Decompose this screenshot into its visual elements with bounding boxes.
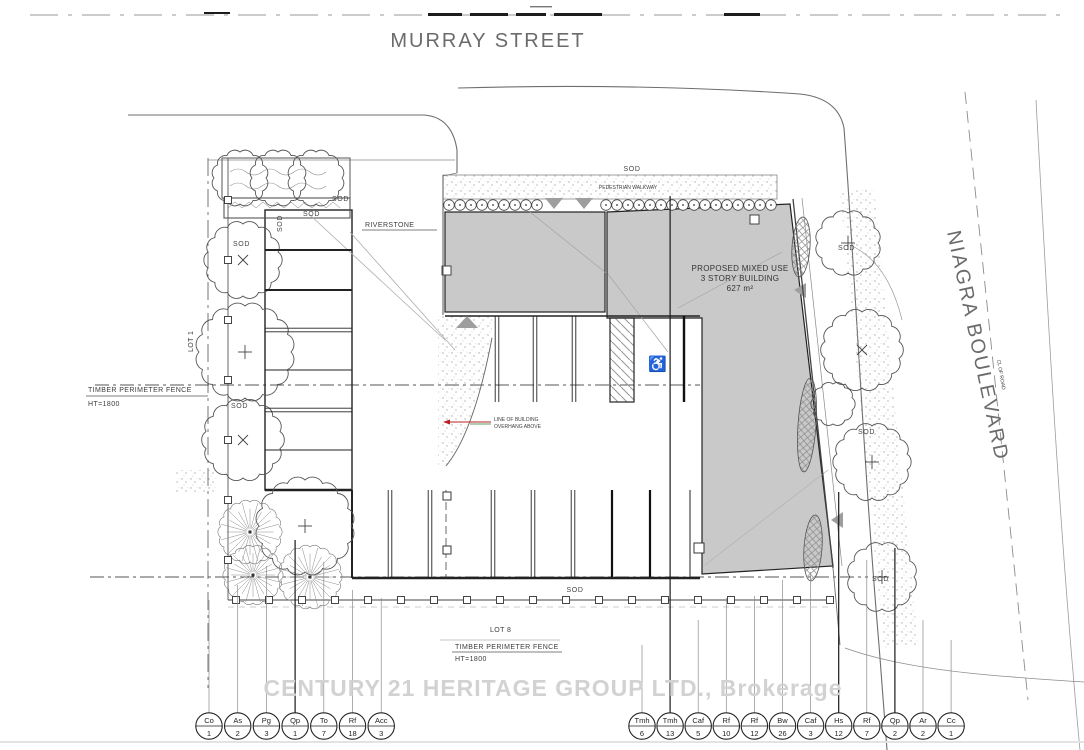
sod-label: SOD (233, 241, 250, 248)
conifer-spoke (313, 580, 332, 599)
plant-symbol-code: Acc (375, 716, 388, 725)
plant-symbol-count: 7 (322, 729, 326, 738)
plant-symbol-count: 1 (949, 729, 953, 738)
building-label-line2: 3 STORY BUILDING (701, 274, 780, 283)
plant-symbol-count: 13 (666, 729, 674, 738)
conifer-spoke (253, 511, 272, 530)
plant-symbol-code: Caf (692, 716, 705, 725)
plant-symbol-code: Qp (290, 716, 300, 725)
conifer-spoke (229, 511, 248, 530)
fence-post (629, 597, 636, 604)
plant-symbol-count: 5 (696, 729, 700, 738)
plant-symbol-code: Cc (947, 716, 956, 725)
overhang-note-line1: LINE OF BUILDING (494, 417, 539, 423)
fence-post (761, 597, 768, 604)
fence-label-left-line2: HT=1800 (88, 401, 120, 408)
plant-symbol-code: Rf (863, 716, 871, 725)
fence-label-left-line1: TIMBER PERIMETER FENCE (88, 387, 192, 394)
fence-post (332, 597, 339, 604)
wheelchair-icon: ♿ (648, 355, 667, 373)
plant-symbol-count: 7 (865, 729, 869, 738)
sod-label: SOD (838, 245, 855, 252)
fence-post (225, 317, 232, 324)
riverstone-leaders (310, 215, 455, 350)
plant-symbol-code: Co (204, 716, 214, 725)
sod-label: SOD (231, 403, 248, 410)
lot1-label: LOT 1 (188, 331, 195, 352)
plant-symbol-count: 2 (893, 729, 897, 738)
conifer-spoke (313, 556, 332, 575)
deciduous-tree (811, 383, 855, 426)
plant-symbol-code: Qp (890, 716, 900, 725)
plant-symbol-code: Rf (751, 716, 759, 725)
fence-post (794, 597, 801, 604)
plant-symbol-count: 2 (921, 729, 925, 738)
plant-symbol-code: Ar (919, 716, 927, 725)
murray-street-label: MURRAY STREET (390, 30, 585, 52)
plant-symbol-count: 3 (809, 729, 813, 738)
fence-post (225, 377, 232, 384)
building-label-line1: PROPOSED MIXED USE (692, 264, 789, 273)
brokerage-watermark: CENTURY 21 HERITAGE GROUP LTD., Brokerag… (263, 675, 842, 701)
fence-label-bottom-line1: TIMBER PERIMETER FENCE (455, 644, 559, 651)
conifer-spoke (289, 580, 308, 599)
sod-label: SOD (303, 211, 320, 218)
hedge-beds (222, 158, 350, 218)
fence-label-bottom-line2: HT=1800 (455, 656, 487, 663)
conifer-spoke (255, 555, 272, 572)
plant-symbol-code: To (320, 716, 328, 725)
plant-symbol-code: Rf (723, 716, 731, 725)
plant-symbol-count: 6 (640, 729, 644, 738)
fence-post (827, 597, 834, 604)
plant-symbol-count: 18 (348, 729, 356, 738)
plant-symbol-count: 3 (264, 729, 268, 738)
plant-symbol-code: Tmh (635, 716, 650, 725)
sod-label: SOD (567, 587, 584, 594)
plant-symbol-count: 12 (835, 729, 843, 738)
fence-post (530, 597, 537, 604)
conifer-spoke (233, 555, 250, 572)
building-label-line3: 627 m² (727, 284, 754, 293)
fence-post (225, 497, 232, 504)
conifer-spoke (233, 577, 250, 594)
fence-post (225, 197, 232, 204)
fence-post (728, 597, 735, 604)
conifer-spoke (289, 556, 308, 575)
fence-post (365, 597, 372, 604)
plant-symbol-code: As (233, 716, 242, 725)
sod-label: SOD (624, 166, 641, 173)
conifer-spoke (255, 577, 272, 594)
fence-post (225, 437, 232, 444)
sod-label: SOD (858, 429, 875, 436)
niagra-boulevard-label: NIAGRA BOULEVARD (942, 228, 1012, 462)
plant-symbol-count: 12 (750, 729, 758, 738)
fence-post (497, 597, 504, 604)
fence-post (225, 257, 232, 264)
murray-street-centerline (30, 6, 1060, 16)
riverstone-label: RIVERSTONE (365, 222, 414, 229)
plant-symbol-code: Pg (262, 716, 271, 725)
site-plan-page: MURRAY STREET NIAGRA BOULEVARD CL OF ROA… (0, 0, 1084, 750)
plant-symbol-count: 1 (207, 729, 211, 738)
fence-post (695, 597, 702, 604)
overhang-note-line2: OVERHANG ABOVE (494, 424, 542, 430)
fence-post (596, 597, 603, 604)
plant-symbol-code: Bw (777, 716, 788, 725)
plant-symbol-count: 3 (379, 729, 383, 738)
conifer-spoke (229, 535, 248, 554)
sod-label: SOD (277, 215, 284, 232)
site-plan-drawing: MURRAY STREET NIAGRA BOULEVARD CL OF ROA… (0, 0, 1084, 750)
lot8-label: LOT 8 (490, 627, 511, 634)
fence-post (233, 597, 240, 604)
fence-post (299, 597, 306, 604)
plant-symbol-code: Caf (805, 716, 818, 725)
plant-symbol-count: 2 (236, 729, 240, 738)
fence-post (464, 597, 471, 604)
pedestrian-walkway-label: PEDESTRIAN WALKWAY (599, 185, 658, 191)
plant-symbol-count: 10 (722, 729, 730, 738)
fence-post (662, 597, 669, 604)
fence-post (431, 597, 438, 604)
proposed-building (442, 204, 833, 574)
plant-symbol-code: Hs (834, 716, 843, 725)
fence-post (398, 597, 405, 604)
plant-symbol-count: 26 (778, 729, 786, 738)
plant-symbol-count: 1 (293, 729, 297, 738)
plant-symbol-code: Rf (349, 716, 357, 725)
fence-post (225, 557, 232, 564)
plant-symbol-code: Tmh (663, 716, 678, 725)
fence-post (563, 597, 570, 604)
